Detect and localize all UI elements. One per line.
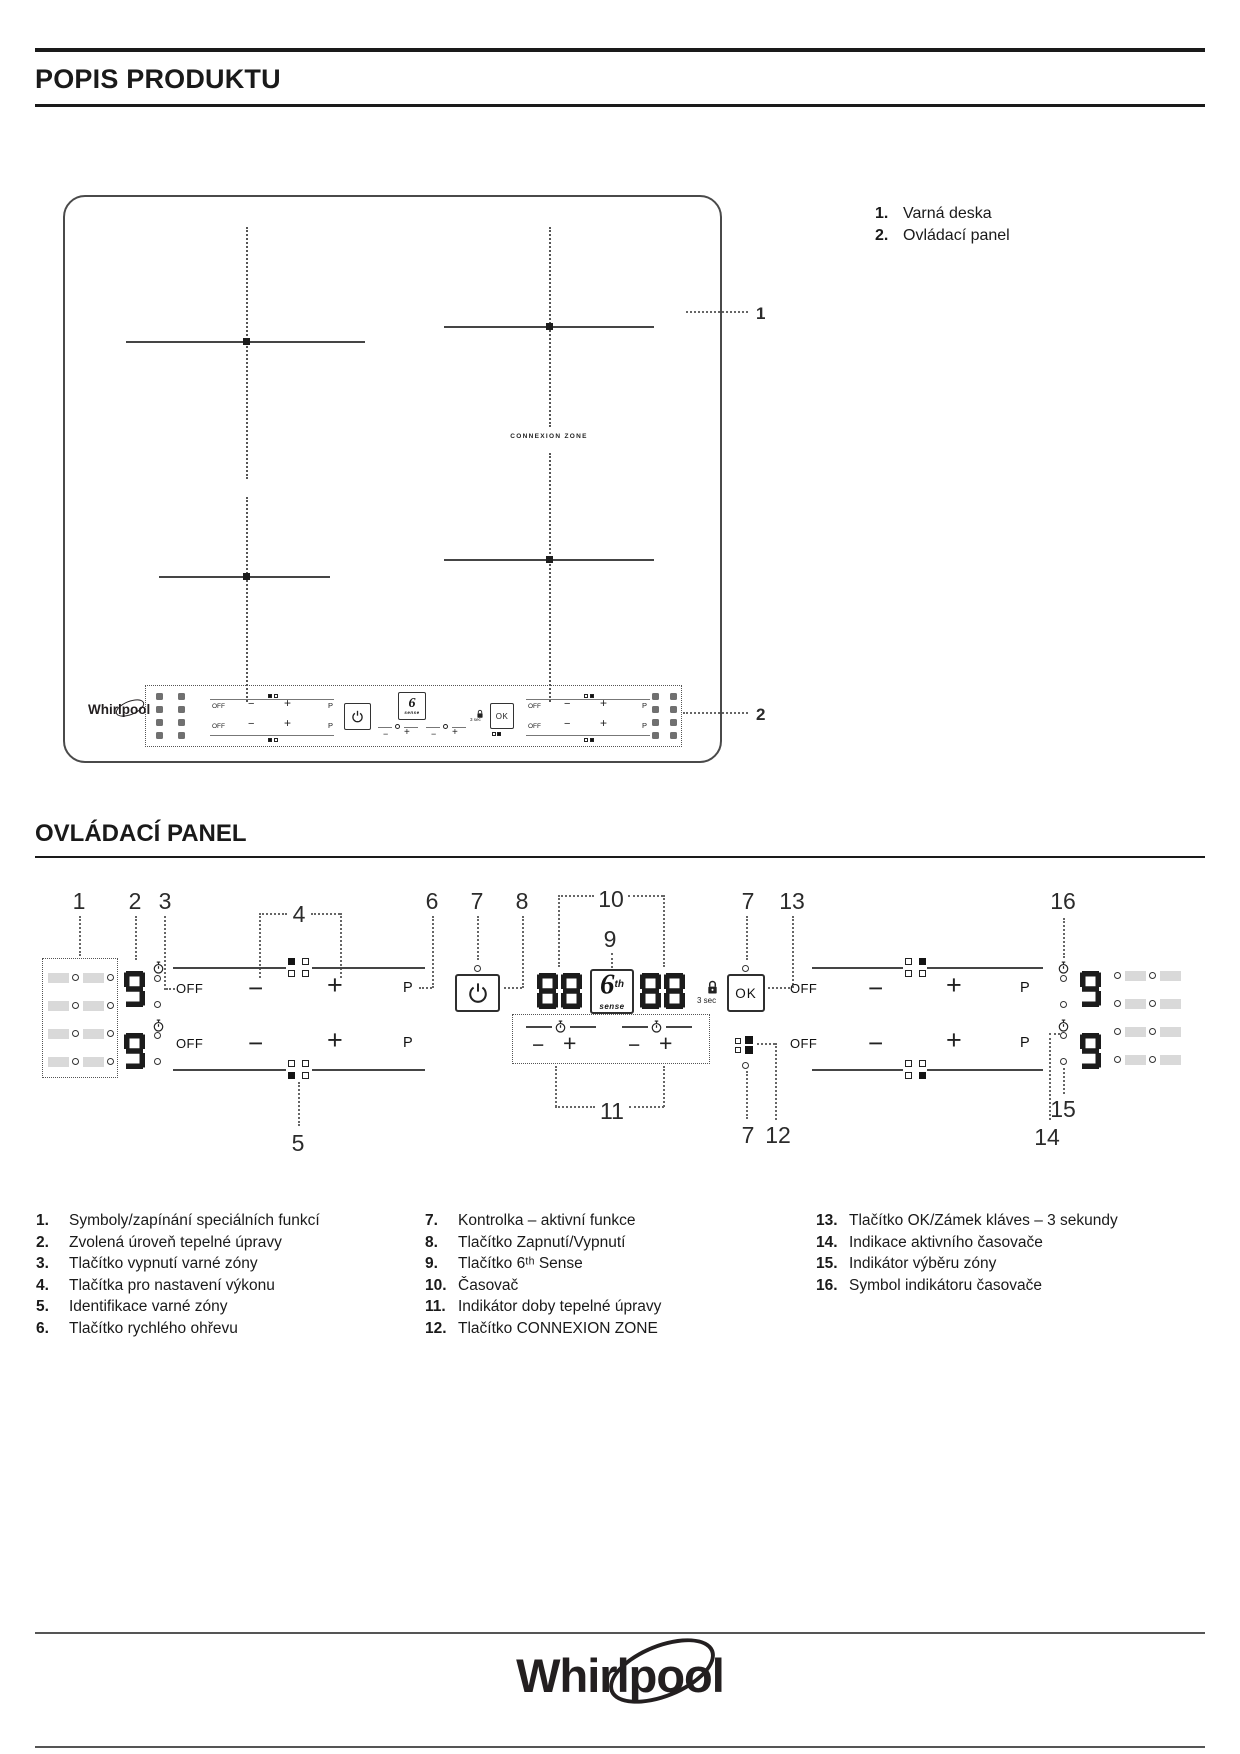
function-indicator <box>107 974 114 981</box>
plus-button: + <box>946 1029 962 1051</box>
legend-num: 15. <box>816 1253 849 1275</box>
legend-text: Indikátor doby tepelné úpravy <box>458 1296 661 1318</box>
off-label: OFF <box>528 723 541 730</box>
leader-line <box>683 712 748 714</box>
slider-mark <box>905 1060 912 1067</box>
legend-text: Identifikace varné zóny <box>69 1296 228 1318</box>
hob-legend-label: Ovládací panel <box>903 225 1010 247</box>
leader-line <box>558 895 560 967</box>
slider-mark <box>288 1072 295 1079</box>
legend-item: 11.Indikátor doby tepelné úpravy <box>425 1296 661 1318</box>
leader-line <box>522 916 524 988</box>
plus-button: + <box>946 974 962 996</box>
slider-mark <box>288 958 295 965</box>
slider-mark <box>302 1072 309 1079</box>
zone-axis-right <box>549 453 551 702</box>
manual-page: POPIS PRODUKTU 1. Varná deska 2. Ovládac… <box>0 0 1240 1754</box>
special-function-symbol <box>83 1029 104 1039</box>
legend-text: Kontrolka – aktivní funkce <box>458 1210 636 1232</box>
power-icon <box>351 710 364 723</box>
function-indicator <box>107 1002 114 1009</box>
special-function-symbol <box>1125 1055 1146 1065</box>
slider-mark <box>584 738 588 742</box>
zone-cross-mark <box>546 323 553 330</box>
special-function-icon <box>652 732 659 739</box>
active-function-indicator <box>154 975 161 982</box>
minus-button: − <box>564 698 570 710</box>
slider-mark <box>919 1072 926 1079</box>
six-sense-digit: 6 <box>600 968 615 1000</box>
legend-text: Zvolená úroveň tepelné úpravy <box>69 1232 282 1254</box>
special-function-icon <box>178 706 185 713</box>
leader-line <box>259 913 287 915</box>
power-slider-line <box>927 1069 1043 1071</box>
off-button: OFF <box>176 1036 203 1051</box>
slider-mark <box>905 970 912 977</box>
slider-mark <box>274 694 278 698</box>
power-slider-line <box>173 1069 286 1071</box>
special-function-symbol <box>1125 1027 1146 1037</box>
leader-line <box>555 1106 595 1108</box>
lock-hint: 3 sec <box>697 996 716 1005</box>
ok-button: OK <box>490 703 514 729</box>
ok-label: OK <box>496 712 509 721</box>
connexion-zone-mark <box>745 1036 753 1044</box>
connexion-zone-mark <box>735 1047 741 1053</box>
callout-7: 7 <box>471 888 484 914</box>
leader-line <box>611 953 613 968</box>
slider-mark <box>905 1072 912 1079</box>
hob-legend-num: 2. <box>875 225 903 247</box>
leader-line <box>477 916 479 960</box>
legend-text: Tlačítka pro nastavení výkonu <box>69 1275 275 1297</box>
special-function-icon <box>178 732 185 739</box>
zone-select-indicator <box>1060 1058 1067 1065</box>
power-button <box>455 974 500 1012</box>
active-function-indicator <box>474 965 481 972</box>
leader-line <box>79 916 81 956</box>
connexion-zone-mark <box>497 732 501 736</box>
whirlpool-swoosh-icon <box>600 1625 724 1717</box>
connexion-zone-label: CONNEXION ZONE <box>485 433 613 440</box>
zone-select-indicator <box>1060 1001 1067 1008</box>
leader-line <box>775 1043 777 1120</box>
six-sense-sup: th <box>615 979 624 990</box>
power-slider-line <box>526 699 650 700</box>
callout-5: 5 <box>292 1130 305 1156</box>
legend-num: 3. <box>36 1253 69 1275</box>
active-function-indicator <box>154 1032 161 1039</box>
special-function-symbol <box>48 1029 69 1039</box>
slider-mark <box>919 970 926 977</box>
callout-2: 2 <box>129 888 142 914</box>
legend-item: 12.Tlačítko CONNEXION ZONE <box>425 1318 661 1340</box>
special-function-symbol <box>83 1001 104 1011</box>
minus-button: − <box>383 729 388 739</box>
boost-label: P <box>642 701 647 710</box>
hob-control-strip: OFF − + P OFF − + P 6 sense − <box>145 685 682 747</box>
special-function-icon <box>652 693 659 700</box>
timer-display <box>640 972 685 1010</box>
legend-num: 16. <box>816 1275 849 1297</box>
off-label: OFF <box>212 703 225 710</box>
legend-num: 4. <box>36 1275 69 1297</box>
zone-select-indicator <box>154 1058 161 1065</box>
minus-button: − <box>431 729 436 739</box>
legend-num: 1. <box>36 1210 69 1232</box>
function-indicator <box>72 1058 79 1065</box>
six-sense-button: 6 sense <box>398 692 426 720</box>
legend-text: Tlačítko rychlého ohřevu <box>69 1318 238 1340</box>
zone-select-indicator <box>154 1001 161 1008</box>
callout-9: 9 <box>604 926 617 952</box>
legend-item: 8.Tlačítko Zapnutí/Vypnutí <box>425 1232 661 1254</box>
power-icon <box>467 982 489 1004</box>
off-button: OFF <box>176 981 203 996</box>
slider-mark <box>268 694 272 698</box>
legend-item: 13.Tlačítko OK/Zámek kláves – 3 sekundy <box>816 1210 1118 1232</box>
timer-line <box>426 727 440 728</box>
legend-item: 14.Indikace aktivního časovače <box>816 1232 1118 1254</box>
panel-section-title: OVLÁDACÍ PANEL <box>35 820 247 848</box>
special-function-symbol <box>1160 971 1181 981</box>
power-level-display <box>124 1032 145 1070</box>
leader-line <box>746 1071 748 1119</box>
callout-7: 7 <box>742 888 755 914</box>
timer-symbol-icon <box>153 1019 164 1032</box>
legend-num: 13. <box>816 1210 849 1232</box>
legend-num: 14. <box>816 1232 849 1254</box>
slider-mark <box>302 970 309 977</box>
power-slider-line <box>312 1069 425 1071</box>
active-function-indicator <box>1060 975 1067 982</box>
legend-text: Tlačítko Zapnutí/Vypnutí <box>458 1232 625 1254</box>
minus-button: − <box>248 698 254 710</box>
special-function-icon <box>670 732 677 739</box>
leader-line <box>663 895 665 967</box>
legend-num: 6. <box>36 1318 69 1340</box>
plus-button: + <box>600 716 607 730</box>
legend-item: 2.Zvolená úroveň tepelné úpravy <box>36 1232 320 1254</box>
timer-symbol-icon <box>153 961 164 974</box>
timer-minus-button: − <box>532 1036 544 1056</box>
special-function-icon <box>156 732 163 739</box>
timer-icon <box>395 724 400 729</box>
legend-num: 12. <box>425 1318 458 1340</box>
function-indicator <box>1114 972 1121 979</box>
hob-legend-num: 1. <box>875 203 903 225</box>
legend-text: Indikace aktivního časovače <box>849 1232 1043 1254</box>
special-function-icon <box>652 719 659 726</box>
leader-line <box>558 895 594 897</box>
hob-legend-item: 2. Ovládací panel <box>875 225 1010 247</box>
power-level-display <box>1080 1032 1101 1070</box>
callout-7: 7 <box>742 1122 755 1148</box>
function-indicator <box>72 1030 79 1037</box>
function-indicator <box>72 974 79 981</box>
ok-button: OK <box>727 974 765 1012</box>
boost-button: P <box>403 1035 413 1051</box>
plus-button: + <box>327 974 343 996</box>
off-button: OFF <box>790 981 817 996</box>
callout-8: 8 <box>516 888 529 914</box>
slider-mark <box>905 958 912 965</box>
title-rule <box>35 104 1205 107</box>
legend-text: Indikátor výběru zóny <box>849 1253 996 1275</box>
plus-button: + <box>284 716 291 730</box>
power-level-display <box>124 970 145 1008</box>
legend-item: 3.Tlačítko vypnutí varné zóny <box>36 1253 320 1275</box>
special-function-symbol <box>1160 1055 1181 1065</box>
minus-button: − <box>868 1033 883 1053</box>
timer-symbol-icon <box>1058 1019 1069 1032</box>
minus-button: − <box>248 1033 263 1053</box>
special-function-symbol <box>48 973 69 983</box>
timer-line <box>622 1026 648 1028</box>
timer-line <box>570 1026 596 1028</box>
function-indicator <box>1114 1028 1121 1035</box>
zone-cross-mark <box>243 573 250 580</box>
power-slider-line <box>312 967 425 969</box>
callout-1: 1 <box>73 888 86 914</box>
footer: Whirlpool <box>0 1648 1240 1703</box>
slider-mark <box>919 1060 926 1067</box>
slider-mark <box>302 958 309 965</box>
bottom-rule <box>35 1746 1205 1748</box>
timer-active-indicator <box>1060 1032 1067 1039</box>
hob-legend-item: 1. Varná deska <box>875 203 1010 225</box>
legend-text: Tlačítko CONNEXION ZONE <box>458 1318 658 1340</box>
legend-text: Tlačítko 6ᵗʰ Sense <box>458 1253 583 1275</box>
legend-item: 9.Tlačítko 6ᵗʰ Sense <box>425 1253 661 1275</box>
special-function-symbol <box>1125 971 1146 981</box>
special-function-icon <box>652 706 659 713</box>
off-label: OFF <box>212 723 225 730</box>
callout-11: 11 <box>600 1098 624 1124</box>
legend-column-2: 7.Kontrolka – aktivní funkce 8.Tlačítko … <box>425 1210 661 1339</box>
leader-line <box>432 916 434 988</box>
legend-num: 5. <box>36 1296 69 1318</box>
active-function-indicator <box>742 1062 749 1069</box>
boost-button: P <box>403 980 413 996</box>
function-indicator <box>1114 1000 1121 1007</box>
special-function-icon <box>156 719 163 726</box>
leader-line <box>768 987 790 989</box>
minus-button: − <box>248 718 254 730</box>
leader-line <box>628 895 663 897</box>
special-function-symbol <box>83 1057 104 1067</box>
legend-text: Tlačítko OK/Zámek kláves – 3 sekundy <box>849 1210 1118 1232</box>
legend-num: 8. <box>425 1232 458 1254</box>
leader-line <box>166 988 175 990</box>
plus-button: + <box>327 1029 343 1051</box>
minus-button: − <box>564 718 570 730</box>
leader-line <box>555 1066 557 1107</box>
minus-button: − <box>868 978 883 998</box>
slider-mark <box>274 738 278 742</box>
callout-6: 6 <box>426 888 439 914</box>
power-slider-line <box>927 967 1043 969</box>
zone-cross-mark <box>546 556 553 563</box>
slider-mark <box>302 1060 309 1067</box>
power-slider-line <box>812 967 903 969</box>
callout-13: 13 <box>779 888 805 914</box>
callout-4: 4 <box>293 901 306 927</box>
legend-item: 6.Tlačítko rychlého ohřevu <box>36 1318 320 1340</box>
special-function-icon <box>670 693 677 700</box>
lock-hint: 3 sec <box>470 717 481 722</box>
boost-button: P <box>1020 980 1030 996</box>
whirlpool-logo: Whirlpool <box>516 1648 724 1703</box>
slider-mark <box>584 694 588 698</box>
callout-16: 16 <box>1050 888 1076 914</box>
legend-num: 2. <box>36 1232 69 1254</box>
special-function-symbol <box>48 1057 69 1067</box>
special-function-icon <box>670 706 677 713</box>
legend-item: 7.Kontrolka – aktivní funkce <box>425 1210 661 1232</box>
timer-symbol-icon <box>1058 961 1069 974</box>
zone-axis-left <box>246 497 248 702</box>
timer-line <box>378 727 392 728</box>
special-function-icon <box>178 693 185 700</box>
function-indicator <box>107 1030 114 1037</box>
timer-line <box>666 1026 692 1028</box>
off-button: OFF <box>790 1036 817 1051</box>
zone-axis-left <box>246 227 248 479</box>
slider-mark <box>590 738 594 742</box>
special-function-symbol <box>1160 1027 1181 1037</box>
special-function-symbol <box>83 973 104 983</box>
special-functions-box <box>42 958 118 1078</box>
six-sense-word: sense <box>404 710 419 715</box>
hob-diagram: CONNEXION ZONE Whirlpool <box>63 195 722 763</box>
plus-button: + <box>452 727 458 738</box>
special-function-symbol <box>1125 999 1146 1009</box>
plus-button: + <box>600 696 607 710</box>
connexion-zone-mark <box>492 732 496 736</box>
special-function-icon <box>156 706 163 713</box>
plus-button: + <box>284 696 291 710</box>
connexion-zone-mark <box>745 1046 753 1054</box>
callout-15: 15 <box>1050 1096 1076 1122</box>
timer-icon <box>443 724 448 729</box>
section-rule <box>35 856 1205 858</box>
legend-num: 7. <box>425 1210 458 1232</box>
leader-line <box>298 1082 300 1126</box>
boost-label: P <box>642 721 647 730</box>
ok-label: OK <box>735 986 757 1001</box>
legend-column-3: 13.Tlačítko OK/Zámek kláves – 3 sekundy … <box>816 1210 1118 1296</box>
timer-plus-button: + <box>563 1032 576 1054</box>
six-sense-digit: 6 <box>409 698 416 710</box>
legend-item: 5.Identifikace varné zóny <box>36 1296 320 1318</box>
legend-text: Symboly/zapínání speciálních funkcí <box>69 1210 320 1232</box>
legend-item: 10.Časovač <box>425 1275 661 1297</box>
footer-rule <box>35 1632 1205 1634</box>
leader-line <box>663 1066 665 1107</box>
legend-item: 16.Symbol indikátoru časovače <box>816 1275 1118 1297</box>
hob-legend: 1. Varná deska 2. Ovládací panel <box>875 203 1010 246</box>
zone-cross-mark <box>243 338 250 345</box>
legend-column-1: 1.Symboly/zapínání speciálních funkcí 2.… <box>36 1210 320 1339</box>
power-slider-line <box>210 699 334 700</box>
legend-num: 10. <box>425 1275 458 1297</box>
power-button <box>344 703 371 730</box>
special-function-symbol <box>48 1001 69 1011</box>
page-title: POPIS PRODUKTU <box>35 64 281 95</box>
leader-line <box>311 913 340 915</box>
callout-10: 10 <box>598 886 624 912</box>
function-indicator <box>1149 1028 1156 1035</box>
leader-line <box>1049 1033 1051 1120</box>
leader-line <box>1063 1068 1065 1094</box>
callout-12: 12 <box>765 1122 791 1148</box>
legend-num: 11. <box>425 1296 458 1318</box>
special-function-icon <box>178 719 185 726</box>
boost-label: P <box>328 721 333 730</box>
active-function-indicator <box>742 965 749 972</box>
leader-line <box>419 987 432 989</box>
power-level-display <box>1080 970 1101 1008</box>
slider-mark <box>268 738 272 742</box>
off-label: OFF <box>528 703 541 710</box>
six-sense-button: 6th sense <box>590 969 634 1014</box>
slider-mark <box>919 958 926 965</box>
callout-hob: 1 <box>756 301 765 327</box>
six-sense-word: sense <box>599 1002 624 1011</box>
leader-line <box>686 311 748 313</box>
leader-line <box>504 987 522 989</box>
timer-plus-button: + <box>659 1032 672 1054</box>
function-indicator <box>1114 1056 1121 1063</box>
callout-3: 3 <box>159 888 172 914</box>
function-indicator <box>72 1002 79 1009</box>
legend-num: 9. <box>425 1253 458 1275</box>
legend-text: Tlačítko vypnutí varné zóny <box>69 1253 258 1275</box>
legend-item: 4.Tlačítka pro nastavení výkonu <box>36 1275 320 1297</box>
power-slider-line <box>526 735 650 736</box>
boost-button: P <box>1020 1035 1030 1051</box>
function-indicator <box>1149 1056 1156 1063</box>
power-slider-line <box>173 967 286 969</box>
top-rule <box>35 48 1205 52</box>
slider-mark <box>288 1060 295 1067</box>
leader-line <box>792 916 794 988</box>
leader-line <box>629 1106 664 1108</box>
leader-line <box>135 916 137 960</box>
callout-14: 14 <box>1034 1124 1060 1150</box>
special-function-icon <box>670 719 677 726</box>
legend-item: 1.Symboly/zapínání speciálních funkcí <box>36 1210 320 1232</box>
slider-mark <box>590 694 594 698</box>
leader-line <box>746 916 748 960</box>
timer-minus-button: − <box>628 1036 640 1056</box>
special-function-symbol <box>1160 999 1181 1009</box>
minus-button: − <box>248 978 263 998</box>
legend-text: Časovač <box>458 1275 518 1297</box>
function-indicator <box>1149 972 1156 979</box>
boost-label: P <box>328 701 333 710</box>
function-indicator <box>107 1058 114 1065</box>
special-function-icon <box>156 693 163 700</box>
timer-display <box>537 972 582 1010</box>
slider-mark <box>288 970 295 977</box>
power-slider-line <box>210 735 334 736</box>
callout-panel: 2 <box>756 702 765 728</box>
leader-line <box>164 916 166 990</box>
legend-text: Symbol indikátoru časovače <box>849 1275 1042 1297</box>
timer-line <box>526 1026 552 1028</box>
